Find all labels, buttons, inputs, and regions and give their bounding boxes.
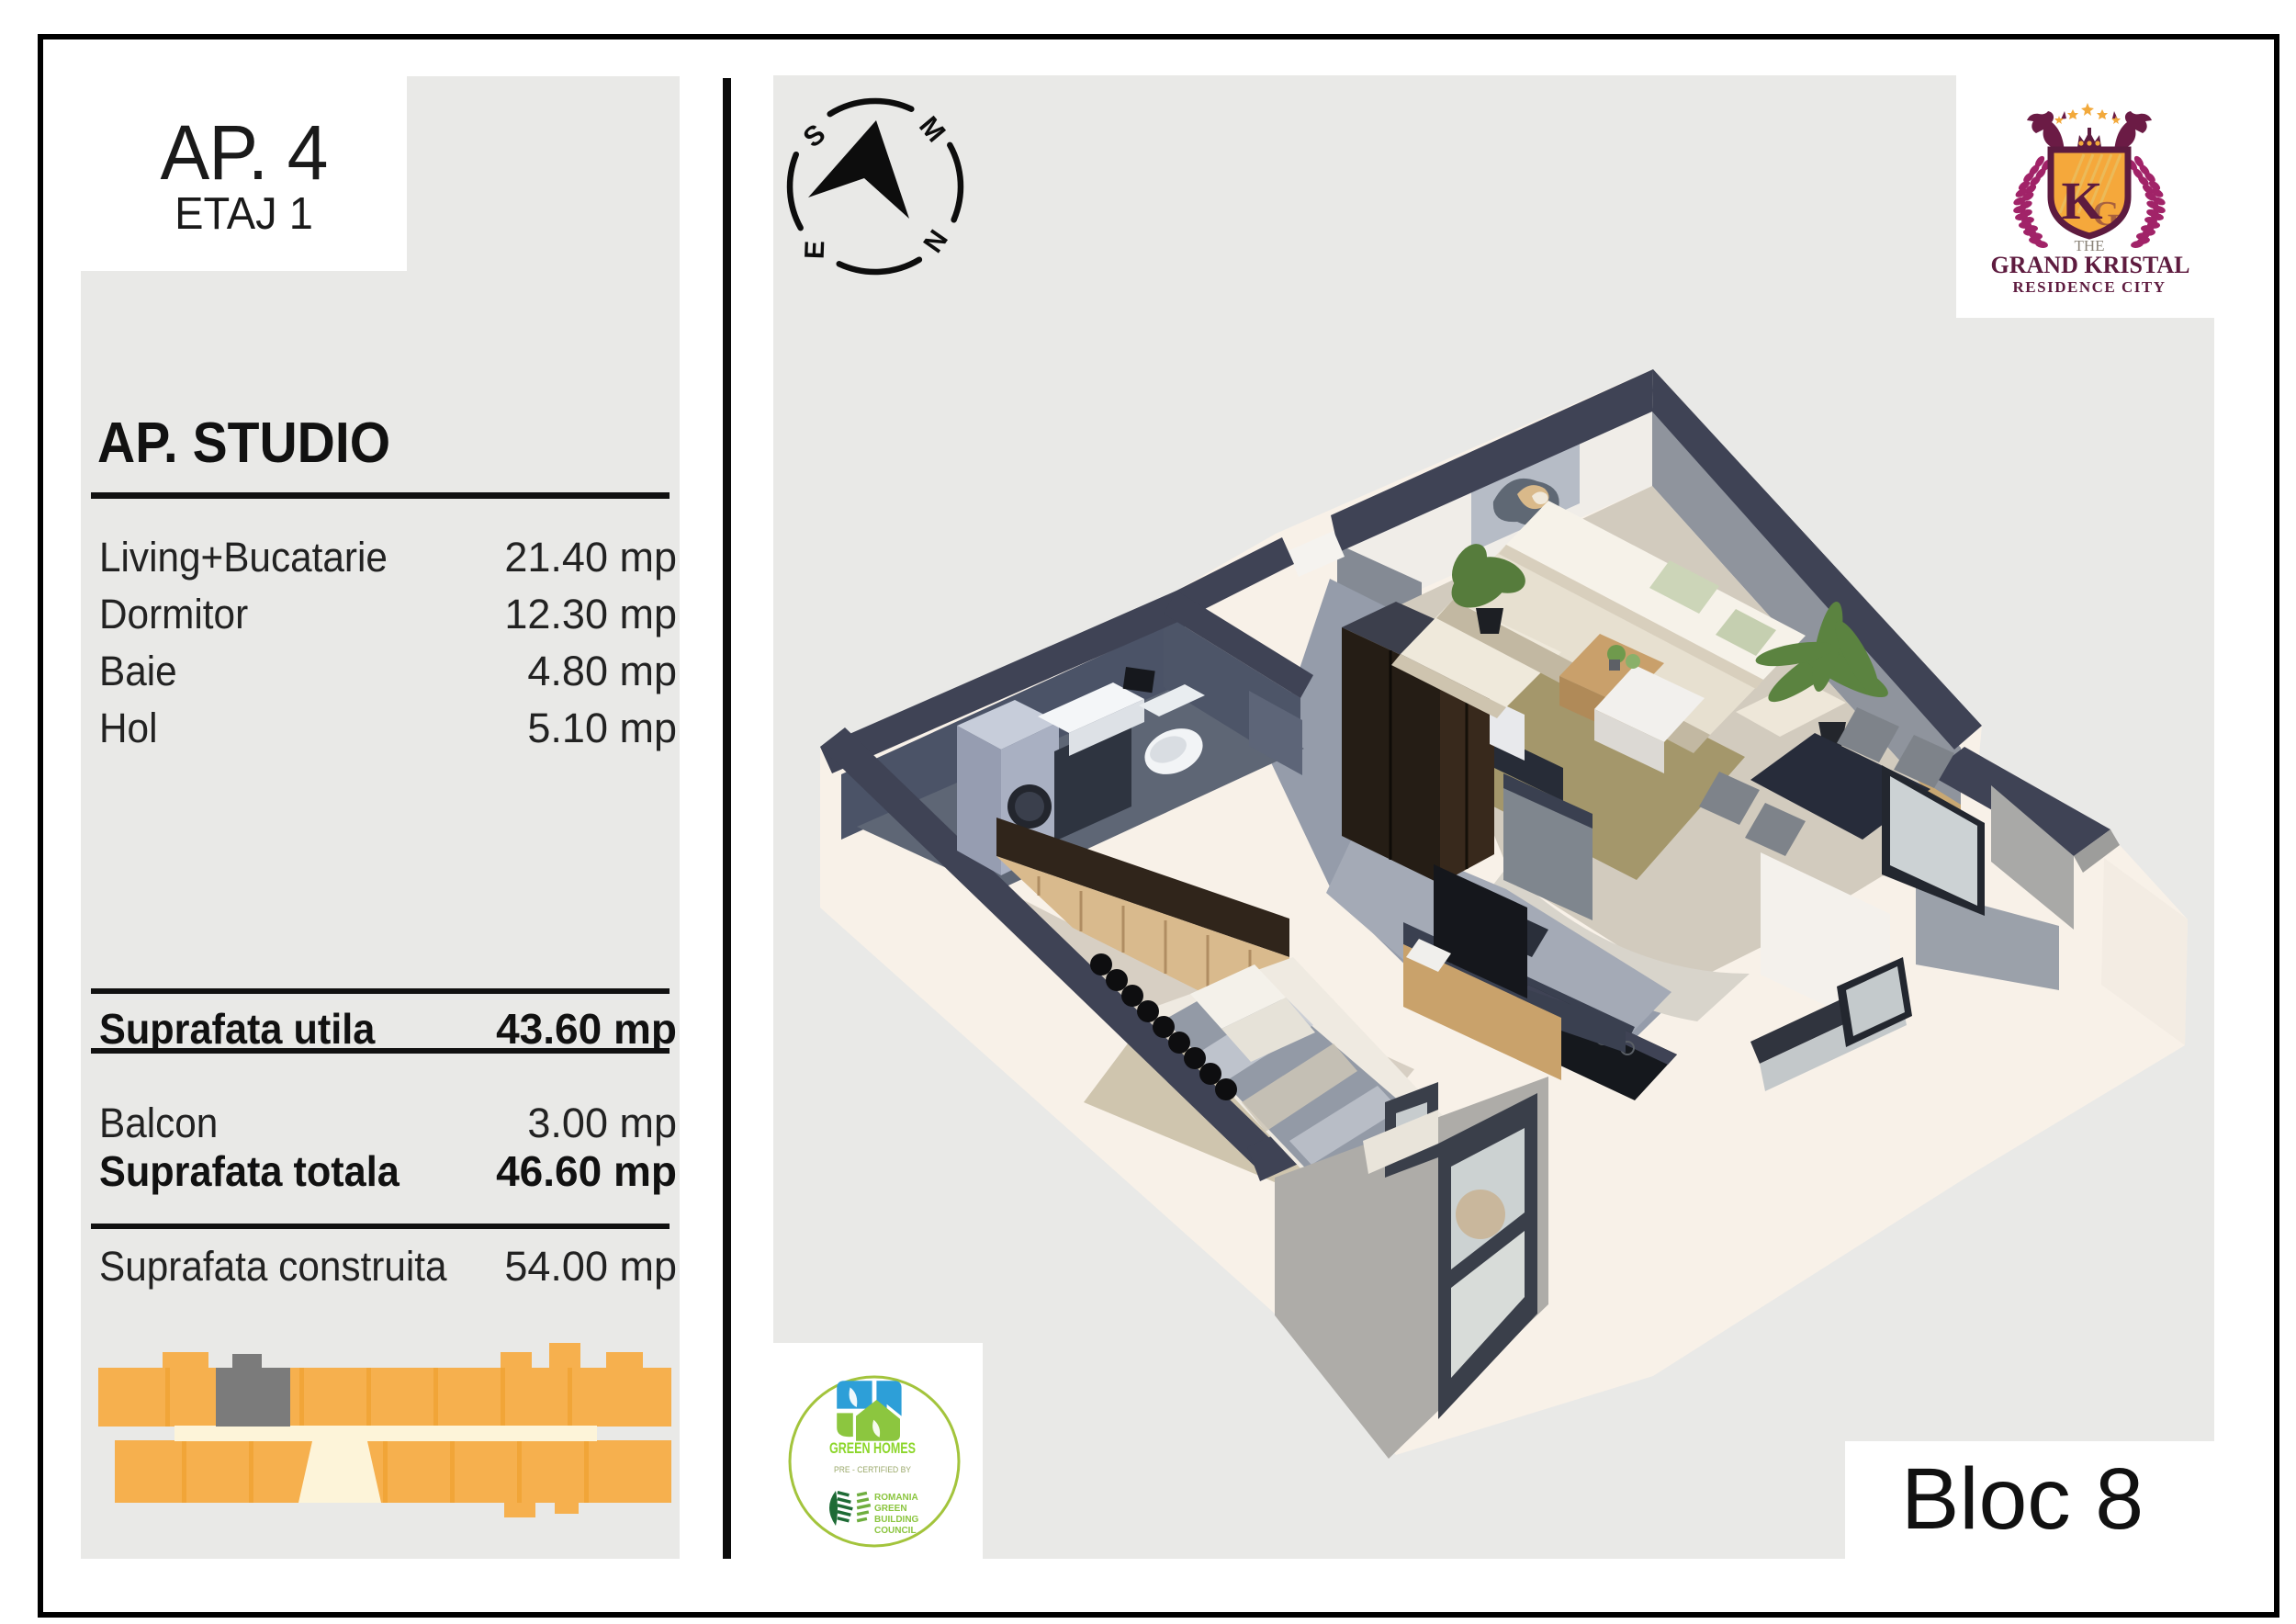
- svg-text:G: G: [2092, 195, 2120, 233]
- svg-text:GREEN: GREEN: [874, 1504, 907, 1514]
- svg-text:GRAND KRISTAL: GRAND KRISTAL: [1991, 252, 2190, 278]
- svg-text:COUNCIL: COUNCIL: [874, 1526, 917, 1536]
- svg-text:ROMANIA: ROMANIA: [874, 1493, 918, 1503]
- svg-text:N: N: [917, 225, 953, 259]
- svg-text:S: S: [798, 118, 832, 153]
- svg-text:GREEN HOMES: GREEN HOMES: [829, 1439, 916, 1457]
- svg-text:E: E: [800, 240, 831, 259]
- svg-text:PRE - CERTIFIED BY: PRE - CERTIFIED BY: [834, 1465, 911, 1474]
- svg-text:BUILDING: BUILDING: [874, 1515, 919, 1525]
- svg-text:M: M: [913, 111, 951, 148]
- svg-text:RESIDENCE CITY: RESIDENCE CITY: [2013, 278, 2167, 296]
